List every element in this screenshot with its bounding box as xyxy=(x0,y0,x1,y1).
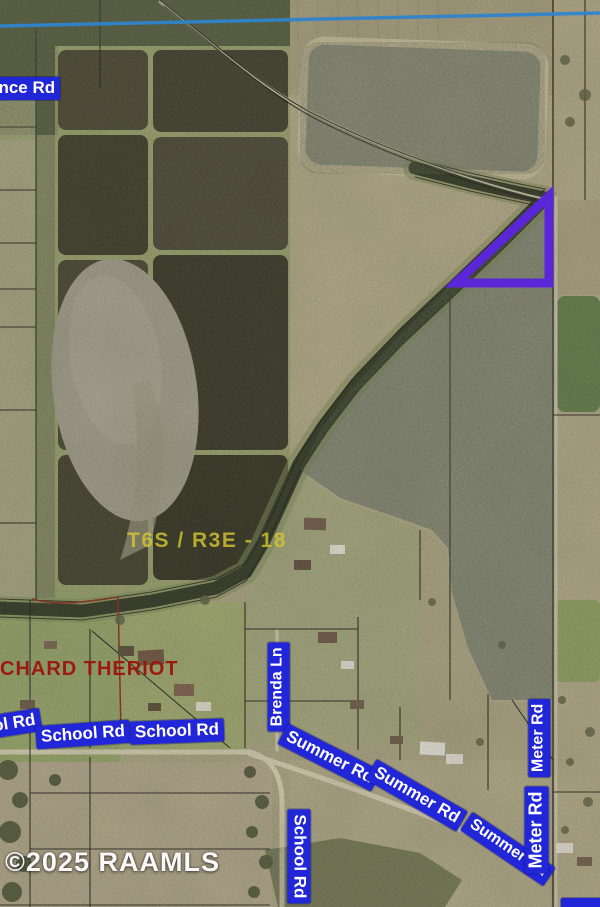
road-label-brenda-ln: Brenda Ln xyxy=(268,642,290,731)
road-label-school-rd-2: School Rd xyxy=(130,718,225,744)
section-township-label: T6S / R3E - 18 xyxy=(127,529,287,553)
road-label-meter-rd-upper: Meter Rd xyxy=(528,699,550,777)
road-label-partial-bottom-right xyxy=(561,898,600,907)
label-overlay: ence Rd ol Rd School Rd School Rd Brenda… xyxy=(0,0,600,907)
road-label-school-rd-vertical: School Rd xyxy=(288,809,311,903)
road-label-summer-rd-2: Summer Rd xyxy=(365,759,468,831)
owner-parcel-label: CHARD THERIOT xyxy=(0,658,179,681)
road-label-summer-rd-1: Summer Rd xyxy=(278,723,382,791)
road-label-meter-rd-lower: Meter Rd xyxy=(525,786,549,873)
map-canvas: ence Rd ol Rd School Rd School Rd Brenda… xyxy=(0,0,600,907)
copyright-watermark: ©2025 RAAMLS xyxy=(5,847,220,878)
road-label-ence-rd: ence Rd xyxy=(0,77,60,100)
road-label-school-rd-1: School Rd xyxy=(35,720,130,749)
